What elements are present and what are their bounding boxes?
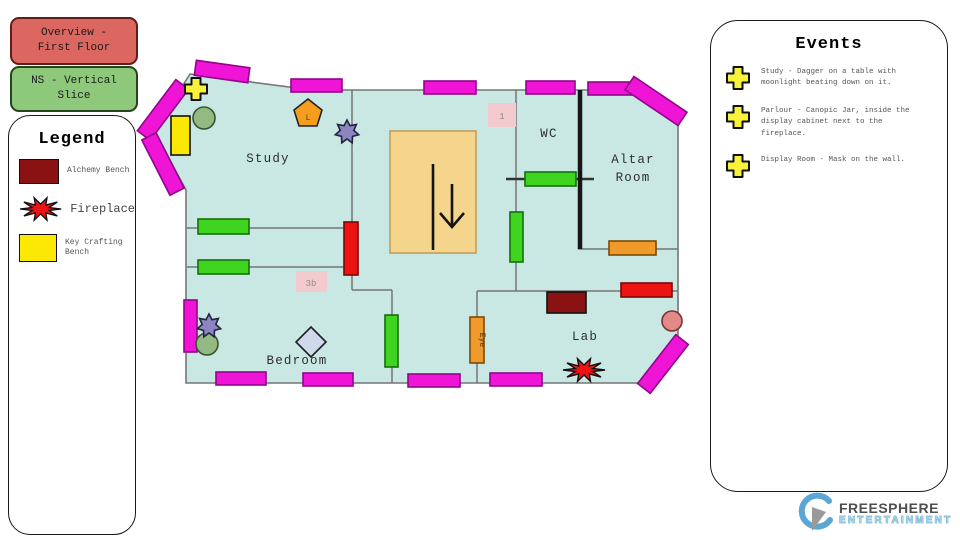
window-marker <box>216 372 266 385</box>
freesphere-logo-icon <box>795 492 837 534</box>
logo-name: FREESPHERE <box>839 501 952 515</box>
door-green <box>525 172 576 186</box>
room-label-altar-1: Altar <box>611 153 655 167</box>
pink-circle-marker <box>662 311 682 331</box>
stair-marker-label: 1 <box>499 112 504 122</box>
window-marker <box>291 79 342 92</box>
room-label-altar-2: Room <box>616 171 651 185</box>
door-green <box>510 212 523 262</box>
window-marker <box>490 373 542 386</box>
alchemy-bench <box>547 292 586 313</box>
door-red <box>621 283 672 297</box>
lantern-label: L <box>305 113 310 123</box>
window-marker <box>526 81 575 94</box>
logo-subtitle: ENTERTAINMENT <box>839 516 952 526</box>
green-circle-marker <box>193 107 215 129</box>
freesphere-logo: FREESPHERE ENTERTAINMENT <box>795 492 952 534</box>
room-label-lab: Lab <box>572 330 598 344</box>
corridor-marker-label: 3b <box>306 279 317 289</box>
door-green <box>198 260 249 274</box>
key-crafting-bench <box>171 116 190 155</box>
room-label-bedroom: Bedroom <box>267 354 328 368</box>
window-marker <box>408 374 460 387</box>
staircase <box>390 131 476 253</box>
room-label-study: Study <box>246 152 290 166</box>
room-label-wc: WC <box>540 127 557 141</box>
floor-plan: Eye 1 3b L Study WC Altar Room Bedroom L… <box>0 0 960 540</box>
page: Overview - First Floor NS - Vertical Sli… <box>0 0 960 540</box>
eye-door-label: Eye <box>477 333 486 348</box>
door-green <box>385 315 398 367</box>
door-red <box>344 222 358 275</box>
window-marker <box>184 300 197 352</box>
door-orange <box>609 241 656 255</box>
window-marker <box>303 373 353 386</box>
door-green <box>198 219 249 234</box>
window-marker <box>424 81 476 94</box>
